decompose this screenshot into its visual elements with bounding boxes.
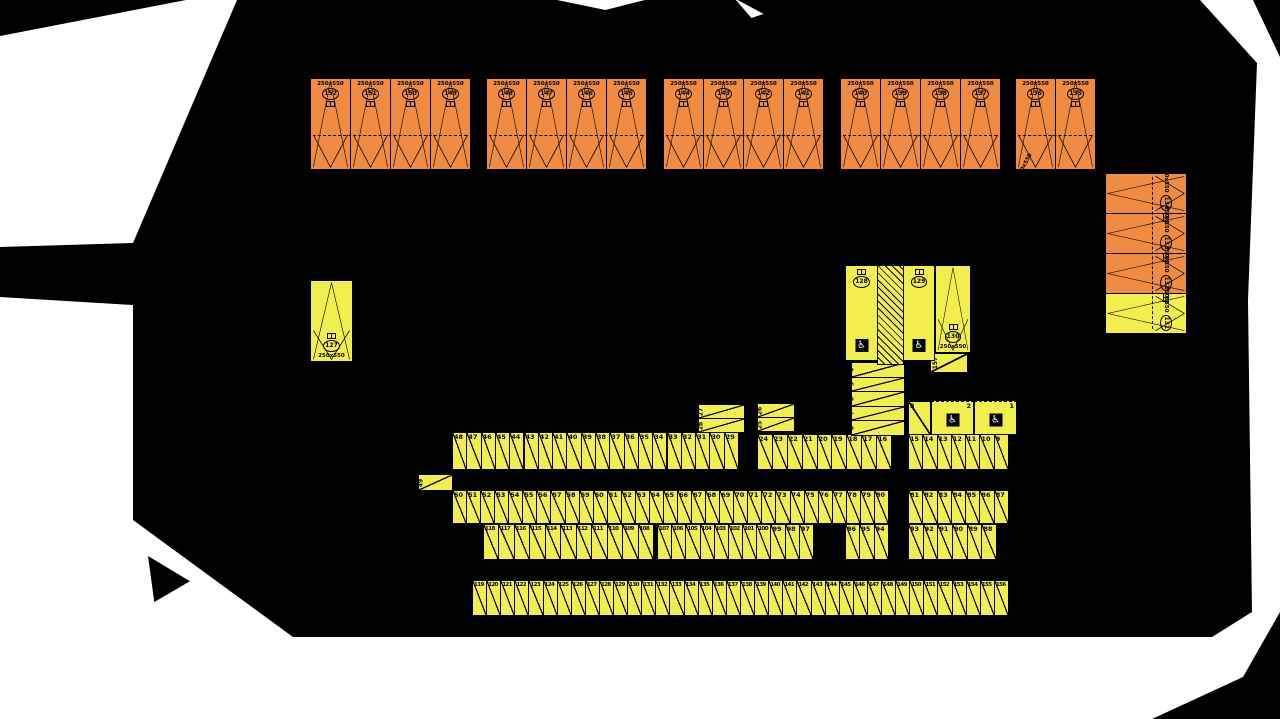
stall-number: 20 bbox=[819, 435, 828, 443]
stall-id-circle: 148 bbox=[498, 88, 515, 100]
vehicle-icon bbox=[446, 101, 455, 107]
vehicle-icon bbox=[799, 101, 808, 107]
vehicle-icon bbox=[406, 101, 415, 107]
parking-stall: 87 bbox=[994, 490, 1009, 524]
stall-number: 36 bbox=[626, 433, 635, 441]
size-label: 250x550 bbox=[940, 344, 967, 350]
parking-stall: 29 bbox=[724, 432, 739, 470]
parking-stall-large: 250x550139 bbox=[880, 78, 921, 170]
parking-stall: 49 bbox=[418, 474, 453, 491]
parking-stall: 43 bbox=[524, 432, 539, 470]
parking-stall: 73 bbox=[775, 490, 790, 524]
stall-label: 250x550137 bbox=[961, 81, 1000, 107]
stall-number: 95 bbox=[861, 525, 870, 533]
stall-number: 24 bbox=[759, 435, 768, 443]
parking-stall-large: 250x550137 bbox=[960, 78, 1001, 170]
parking-stall: 95 bbox=[859, 524, 874, 560]
stall-number: 89 bbox=[969, 525, 978, 533]
stall-number: 96 bbox=[847, 525, 856, 533]
parking-stall: 148 bbox=[881, 580, 896, 616]
size-label: 250x550 bbox=[927, 81, 954, 87]
parking-stall: 57 bbox=[550, 490, 565, 524]
stall-id-circle: 138 bbox=[932, 88, 949, 100]
parking-stall: 22 bbox=[787, 434, 803, 470]
stall-number: 142 bbox=[798, 581, 808, 589]
stall-label: 250x550149 bbox=[431, 81, 470, 107]
parking-stall: 127 bbox=[585, 580, 600, 616]
stall-number: 75 bbox=[806, 491, 815, 499]
stall-id-circle: 137 bbox=[972, 88, 989, 100]
stall-number: 58 bbox=[567, 491, 576, 499]
stall-number: 25 bbox=[757, 420, 764, 428]
group-dashed-line bbox=[666, 135, 820, 136]
parking-stall: 134 bbox=[684, 580, 699, 616]
parking-stall: 149 bbox=[895, 580, 910, 616]
stall-number: 2 bbox=[966, 402, 971, 410]
stall-id-circle: 139 bbox=[892, 88, 909, 100]
stall-number: 124 bbox=[545, 581, 555, 589]
stall-id-circle: 145 bbox=[618, 88, 635, 100]
group-dashed-line bbox=[843, 135, 997, 136]
parking-stall: 110 bbox=[607, 524, 623, 560]
vehicle-icon bbox=[857, 269, 866, 275]
stall-number: 82 bbox=[924, 491, 933, 499]
stall-number: 127 bbox=[587, 581, 597, 589]
parking-stall: 129 bbox=[613, 580, 628, 616]
stall-number: 150 bbox=[911, 581, 921, 589]
parking-stall-accessible: 129♿ bbox=[903, 265, 935, 361]
parking-stall: 15 bbox=[908, 434, 923, 470]
parking-stall: 64 bbox=[649, 490, 664, 524]
parking-stall: 54 bbox=[508, 490, 523, 524]
stall-label: 250x550139 bbox=[881, 81, 920, 107]
vehicle-icon bbox=[502, 101, 511, 107]
stall-id-circle: 142 bbox=[755, 88, 772, 100]
stall-number: 33 bbox=[669, 433, 678, 441]
parking-stall: 130 bbox=[627, 580, 642, 616]
stall-number: 8 bbox=[849, 426, 856, 430]
stall-id-circle: 131 bbox=[1160, 314, 1172, 331]
parking-stall: 156 bbox=[994, 580, 1009, 616]
stall-number: 44 bbox=[511, 433, 520, 441]
stall-number: 133 bbox=[671, 581, 681, 589]
stall-number: 45 bbox=[497, 433, 506, 441]
parking-stall: 88 bbox=[981, 524, 997, 560]
stall-number: 88 bbox=[983, 525, 992, 533]
parking-stall: 123 bbox=[528, 580, 543, 616]
parking-stall: 6 bbox=[851, 391, 905, 407]
stall-number: 113 bbox=[562, 525, 572, 533]
parking-stall: 111 bbox=[591, 524, 607, 560]
size-label: 250x550 bbox=[887, 81, 914, 87]
parking-stall: 144 bbox=[825, 580, 840, 616]
parking-stall: 108 bbox=[638, 524, 654, 560]
stall-id-circle: 141 bbox=[795, 88, 812, 100]
stall-label: 250x550151 bbox=[351, 81, 390, 107]
parking-stall-large: 130250x550 bbox=[935, 265, 971, 353]
size-label: 250x550 bbox=[317, 81, 344, 87]
parking-stall: 7 bbox=[851, 406, 905, 422]
parking-stall: 115 bbox=[529, 524, 545, 560]
parking-stall: 104 bbox=[700, 524, 715, 560]
stall-number: 126 bbox=[573, 581, 583, 589]
stall-label: 250x550146 bbox=[567, 81, 606, 107]
stall-number: 35 bbox=[640, 433, 649, 441]
parking-stall-large: 250x550152 bbox=[310, 78, 351, 170]
stall-label: 250x550148 bbox=[487, 81, 526, 107]
stall-number: 12 bbox=[953, 435, 962, 443]
stall-label: 250x550150 bbox=[391, 81, 430, 107]
parking-stall: 122 bbox=[514, 580, 529, 616]
parking-stall: 85 bbox=[965, 490, 980, 524]
stall-number: 74 bbox=[792, 491, 801, 499]
stall-number: 131 bbox=[643, 581, 653, 589]
parking-stall: 59 bbox=[579, 490, 594, 524]
stall-number: 97 bbox=[801, 525, 810, 533]
stall-number: 5 bbox=[849, 382, 856, 386]
parking-stall: 41 bbox=[552, 432, 567, 470]
parking-stall: 71 bbox=[747, 490, 762, 524]
stall-number: 14 bbox=[924, 435, 933, 443]
parking-stall: 66 bbox=[677, 490, 692, 524]
parking-stall: 5 bbox=[851, 377, 905, 393]
stall-number: 81 bbox=[910, 491, 919, 499]
parking-stall: 119 bbox=[472, 580, 487, 616]
parking-stall-large: 250x550136 bbox=[1015, 78, 1056, 170]
group-dashed-line bbox=[1018, 135, 1092, 136]
stall-number: 80 bbox=[876, 491, 885, 499]
stall-number: 15 bbox=[910, 435, 919, 443]
parking-stall: 47 bbox=[466, 432, 481, 470]
size-label: 250x550 bbox=[670, 81, 697, 87]
stall-label: 250x550144 bbox=[664, 81, 703, 107]
stall-number: 59 bbox=[581, 491, 590, 499]
stall-number: 114 bbox=[547, 525, 557, 533]
parking-stall: 109 bbox=[622, 524, 638, 560]
stall-number: 120 bbox=[488, 581, 498, 589]
stall-number: 148 bbox=[883, 581, 893, 589]
stall-number: 22 bbox=[789, 435, 798, 443]
group-dashed-line bbox=[1152, 177, 1153, 329]
stall-number: 69 bbox=[721, 491, 730, 499]
parking-stall: 33 bbox=[667, 432, 682, 470]
parking-stall: 51 bbox=[466, 490, 481, 524]
vehicle-icon bbox=[622, 101, 631, 107]
stall-number: 34 bbox=[654, 433, 663, 441]
stall-number: 16 bbox=[878, 435, 887, 443]
stall-number: 84 bbox=[953, 491, 962, 499]
parking-stall-large: 250x550133 bbox=[1105, 213, 1187, 254]
parking-stall: 72 bbox=[761, 490, 776, 524]
parking-stall: 97 bbox=[799, 524, 814, 560]
stall-number: 107 bbox=[659, 525, 669, 533]
stall-id-circle: 127 bbox=[323, 340, 340, 352]
stall-label: 250x550140 bbox=[841, 81, 880, 107]
parking-stall-large: 250x550144 bbox=[663, 78, 704, 170]
parking-stall: 80 bbox=[874, 490, 889, 524]
stall-id-circle: 152 bbox=[322, 88, 339, 100]
stall-number: 23 bbox=[774, 435, 783, 443]
parking-stall-large: 250x550134 bbox=[1105, 173, 1187, 214]
stall-label: 250x550136 bbox=[1016, 81, 1055, 107]
stall-id-circle: 146 bbox=[578, 88, 595, 100]
stall-number: 94 bbox=[876, 525, 885, 533]
stall-number: 4 bbox=[849, 368, 856, 372]
parking-stall: 86 bbox=[979, 490, 994, 524]
parking-stall: 50 bbox=[452, 490, 467, 524]
stall-number: 27 bbox=[698, 407, 705, 415]
stall-number: 63 bbox=[637, 491, 646, 499]
stall-label: 250x550147 bbox=[527, 81, 566, 107]
size-label: 250x550 bbox=[533, 81, 560, 87]
parking-stall: 32 bbox=[681, 432, 696, 470]
parking-stall: 75 bbox=[804, 490, 819, 524]
vehicle-icon bbox=[896, 101, 905, 107]
floor-plan-canvas: 4847464544434241403938373635343332313029… bbox=[0, 0, 1280, 719]
parking-stall: 126 bbox=[571, 580, 586, 616]
stall-number: 11 bbox=[967, 435, 976, 443]
parking-stall: 70 bbox=[733, 490, 748, 524]
stall-number: 57 bbox=[552, 491, 561, 499]
parking-stall: 152 bbox=[937, 580, 952, 616]
stall-number: 18 bbox=[848, 435, 857, 443]
vehicle-icon bbox=[542, 101, 551, 107]
vehicle-icon bbox=[915, 269, 924, 275]
stall-number: 145 bbox=[841, 581, 851, 589]
stall-number: 83 bbox=[939, 491, 948, 499]
stall-number: 93 bbox=[910, 525, 919, 533]
stall-number: 123 bbox=[530, 581, 540, 589]
stall-number: 151 bbox=[925, 581, 935, 589]
parking-layout: 4847464544434241403938373635343332313029… bbox=[0, 0, 1280, 719]
vehicle-icon bbox=[1031, 101, 1040, 107]
stall-id-circle: 129 bbox=[911, 276, 928, 288]
parking-stall: 154 bbox=[966, 580, 981, 616]
stall-label: 129 bbox=[904, 269, 934, 288]
stall-number: 9 bbox=[996, 435, 1001, 443]
parking-stall: 128 bbox=[599, 580, 614, 616]
vehicle-icon bbox=[949, 324, 958, 330]
parking-stall-accessible: 1♿ bbox=[974, 401, 1017, 435]
stall-number: 29 bbox=[726, 433, 735, 441]
parking-stall: 68 bbox=[705, 490, 720, 524]
parking-stall: 153 bbox=[952, 580, 967, 616]
parking-stall: 157 bbox=[930, 353, 968, 373]
parking-stall-large: 250x550145 bbox=[606, 78, 647, 170]
boundary-dashed-line bbox=[843, 268, 844, 362]
parking-stall: 21 bbox=[802, 434, 818, 470]
stall-label: 127250x550 bbox=[311, 333, 352, 359]
parking-stall: 139 bbox=[754, 580, 769, 616]
stall-number: 40 bbox=[568, 433, 577, 441]
stall-label: 250x550141 bbox=[784, 81, 823, 107]
stall-number: 76 bbox=[820, 491, 829, 499]
stall-number: 91 bbox=[939, 525, 948, 533]
parking-stall: 155 bbox=[980, 580, 995, 616]
parking-stall: 42 bbox=[538, 432, 553, 470]
stall-number: 79 bbox=[862, 491, 871, 499]
parking-stall: 100 bbox=[756, 524, 771, 560]
vehicle-icon bbox=[582, 101, 591, 107]
parking-stall: 79 bbox=[860, 490, 875, 524]
stall-label: 250x550145 bbox=[607, 81, 646, 107]
stall-number: 19 bbox=[833, 435, 842, 443]
parking-stall: 81 bbox=[908, 490, 923, 524]
size-label: 250x550 bbox=[750, 81, 777, 87]
stall-number: 30 bbox=[711, 433, 720, 441]
stall-number: 37 bbox=[611, 433, 620, 441]
stall-number: 86 bbox=[981, 491, 990, 499]
parking-stall: 45 bbox=[495, 432, 510, 470]
stall-number: 118 bbox=[485, 525, 495, 533]
stall-number: 21 bbox=[804, 435, 813, 443]
parking-stall: 102 bbox=[728, 524, 743, 560]
stall-number: 50 bbox=[454, 491, 463, 499]
size-label: 250x550 bbox=[318, 353, 345, 359]
parking-stall: 138 bbox=[740, 580, 755, 616]
stall-number: 32 bbox=[683, 433, 692, 441]
stall-number: 43 bbox=[526, 433, 535, 441]
wheelchair-icon: ♿ bbox=[946, 413, 959, 426]
parking-stall-large: 250x550141 bbox=[783, 78, 824, 170]
size-label: 250x550 bbox=[1163, 245, 1169, 272]
stall-number: 135 bbox=[700, 581, 710, 589]
ramp-hatch bbox=[877, 265, 904, 365]
size-label: 250x550 bbox=[847, 81, 874, 87]
parking-stall: 34 bbox=[652, 432, 667, 470]
stall-number: 73 bbox=[777, 491, 786, 499]
vehicle-icon bbox=[1163, 333, 1169, 342]
vehicle-icon bbox=[366, 101, 375, 107]
parking-stall-large: 250x550132 bbox=[1105, 253, 1187, 294]
parking-stall: 121 bbox=[500, 580, 515, 616]
stall-number: 17 bbox=[863, 435, 872, 443]
parking-stall: 89 bbox=[967, 524, 983, 560]
parking-stall: 19 bbox=[831, 434, 847, 470]
parking-stall: 140 bbox=[768, 580, 783, 616]
stall-number: 143 bbox=[813, 581, 823, 589]
boundary-markers: ✕ ✕ ✕ bbox=[835, 275, 841, 311]
stall-id-circle: 136 bbox=[1027, 88, 1044, 100]
parking-stall: 36 bbox=[624, 432, 639, 470]
stall-number: 128 bbox=[601, 581, 611, 589]
stall-id-circle: 149 bbox=[442, 88, 459, 100]
stall-number: 10 bbox=[981, 435, 990, 443]
parking-stall: 137 bbox=[726, 580, 741, 616]
stall-label: 250x550135 bbox=[1056, 81, 1095, 107]
parking-stall: 141 bbox=[782, 580, 797, 616]
stall-number: 26 bbox=[757, 406, 764, 414]
parking-stall: 63 bbox=[635, 490, 650, 524]
parking-stall: 114 bbox=[545, 524, 561, 560]
parking-stall-large: 250x550138 bbox=[920, 78, 961, 170]
stall-number: 115 bbox=[531, 525, 541, 533]
group-dashed-line bbox=[313, 135, 467, 136]
parking-stall: 27 bbox=[698, 404, 745, 419]
stall-label: 250x550138 bbox=[921, 81, 960, 107]
size-label: 250x550 bbox=[1163, 285, 1169, 312]
parking-stall: 67 bbox=[691, 490, 706, 524]
stall-number: 153 bbox=[954, 581, 964, 589]
parking-stall: 145 bbox=[839, 580, 854, 616]
parking-stall-accessible: 2♿ bbox=[931, 401, 974, 435]
stall-number: 41 bbox=[554, 433, 563, 441]
parking-stall: 77 bbox=[832, 490, 847, 524]
stall-number: 56 bbox=[538, 491, 547, 499]
size-label: 250x550 bbox=[397, 81, 424, 87]
stall-number: 38 bbox=[597, 433, 606, 441]
stall-number: 7 bbox=[849, 411, 856, 415]
size-label: 250x550 bbox=[613, 81, 640, 87]
stall-number: 3 bbox=[910, 402, 915, 410]
size-label: 250x550 bbox=[357, 81, 384, 87]
stall-number: 134 bbox=[686, 581, 696, 589]
parking-stall: 135 bbox=[698, 580, 713, 616]
size-label: 250x550 bbox=[710, 81, 737, 87]
parking-stall: 99 bbox=[770, 524, 785, 560]
parking-stall: 23 bbox=[772, 434, 788, 470]
parking-stall: 9 bbox=[994, 434, 1009, 470]
parking-stall: 74 bbox=[790, 490, 805, 524]
stall-number: 138 bbox=[742, 581, 752, 589]
stall-number: 154 bbox=[968, 581, 978, 589]
stall-number: 117 bbox=[500, 525, 510, 533]
parking-stall: 46 bbox=[481, 432, 496, 470]
group-dashed-line bbox=[489, 135, 643, 136]
size-label: 250x550 bbox=[1062, 81, 1089, 87]
parking-stall: 37 bbox=[609, 432, 624, 470]
parking-stall: 93 bbox=[908, 524, 924, 560]
stall-id-circle: 150 bbox=[402, 88, 419, 100]
parking-stall: 82 bbox=[922, 490, 937, 524]
stall-number: 100 bbox=[758, 525, 768, 533]
parking-stall-large: 127250x550 bbox=[310, 280, 353, 362]
stall-number: 64 bbox=[651, 491, 660, 499]
stall-number: 149 bbox=[897, 581, 907, 589]
parking-stall: 24 bbox=[757, 434, 773, 470]
size-label: 250x550 bbox=[1163, 165, 1169, 192]
parking-stall: 12 bbox=[951, 434, 966, 470]
stall-number: 132 bbox=[657, 581, 667, 589]
parking-stall: 107 bbox=[657, 524, 672, 560]
vehicle-icon bbox=[936, 101, 945, 107]
stall-number: 112 bbox=[578, 525, 588, 533]
parking-stall-large: 250x550148 bbox=[486, 78, 527, 170]
stall-id-circle: 144 bbox=[675, 88, 692, 100]
stall-number: 109 bbox=[624, 525, 634, 533]
parking-stall-large: 250x550147 bbox=[526, 78, 567, 170]
parking-stall-large: 250x550146 bbox=[566, 78, 607, 170]
size-label: 250x550 bbox=[1163, 205, 1169, 232]
stall-number: 146 bbox=[855, 581, 865, 589]
parking-stall: 142 bbox=[796, 580, 811, 616]
parking-stall: 65 bbox=[663, 490, 678, 524]
parking-stall: 44 bbox=[509, 432, 524, 470]
parking-stall: 62 bbox=[621, 490, 636, 524]
parking-stall: 31 bbox=[695, 432, 710, 470]
parking-stall: 116 bbox=[514, 524, 530, 560]
stall-number: 139 bbox=[756, 581, 766, 589]
parking-stall: 18 bbox=[846, 434, 862, 470]
size-label: 250x550 bbox=[790, 81, 817, 87]
parking-stall: 83 bbox=[937, 490, 952, 524]
stall-number: 1 bbox=[1009, 402, 1014, 410]
stall-label: 250x550152 bbox=[311, 81, 350, 107]
parking-stall: 112 bbox=[576, 524, 592, 560]
stall-number: 136 bbox=[714, 581, 724, 589]
parking-stall: 91 bbox=[937, 524, 953, 560]
stall-number: 106 bbox=[673, 525, 683, 533]
